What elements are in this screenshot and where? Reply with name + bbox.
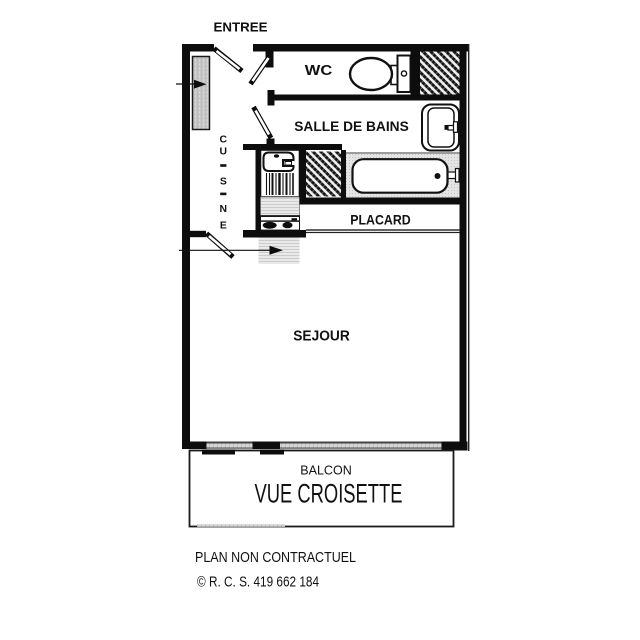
svg-text:SALLE DE BAINS: SALLE DE BAINS — [294, 118, 409, 134]
svg-text:U: U — [220, 146, 228, 157]
svg-text:C: C — [220, 135, 228, 146]
svg-text:BALCON: BALCON — [300, 463, 352, 478]
svg-text:WC: WC — [305, 63, 333, 79]
svg-text:E: E — [220, 221, 227, 232]
svg-text:PLAN NON CONTRACTUEL: PLAN NON CONTRACTUEL — [195, 549, 356, 566]
svg-text:VUE CROISETTE: VUE CROISETTE — [255, 479, 403, 509]
svg-text:SEJOUR: SEJOUR — [293, 328, 350, 344]
svg-text:PLACARD: PLACARD — [350, 211, 411, 227]
svg-text:© R. C. S. 419 662 184: © R. C. S. 419 662 184 — [197, 574, 319, 591]
svg-text:N: N — [220, 204, 228, 215]
svg-text:ENTREE: ENTREE — [214, 20, 268, 35]
svg-text:S: S — [220, 177, 227, 188]
